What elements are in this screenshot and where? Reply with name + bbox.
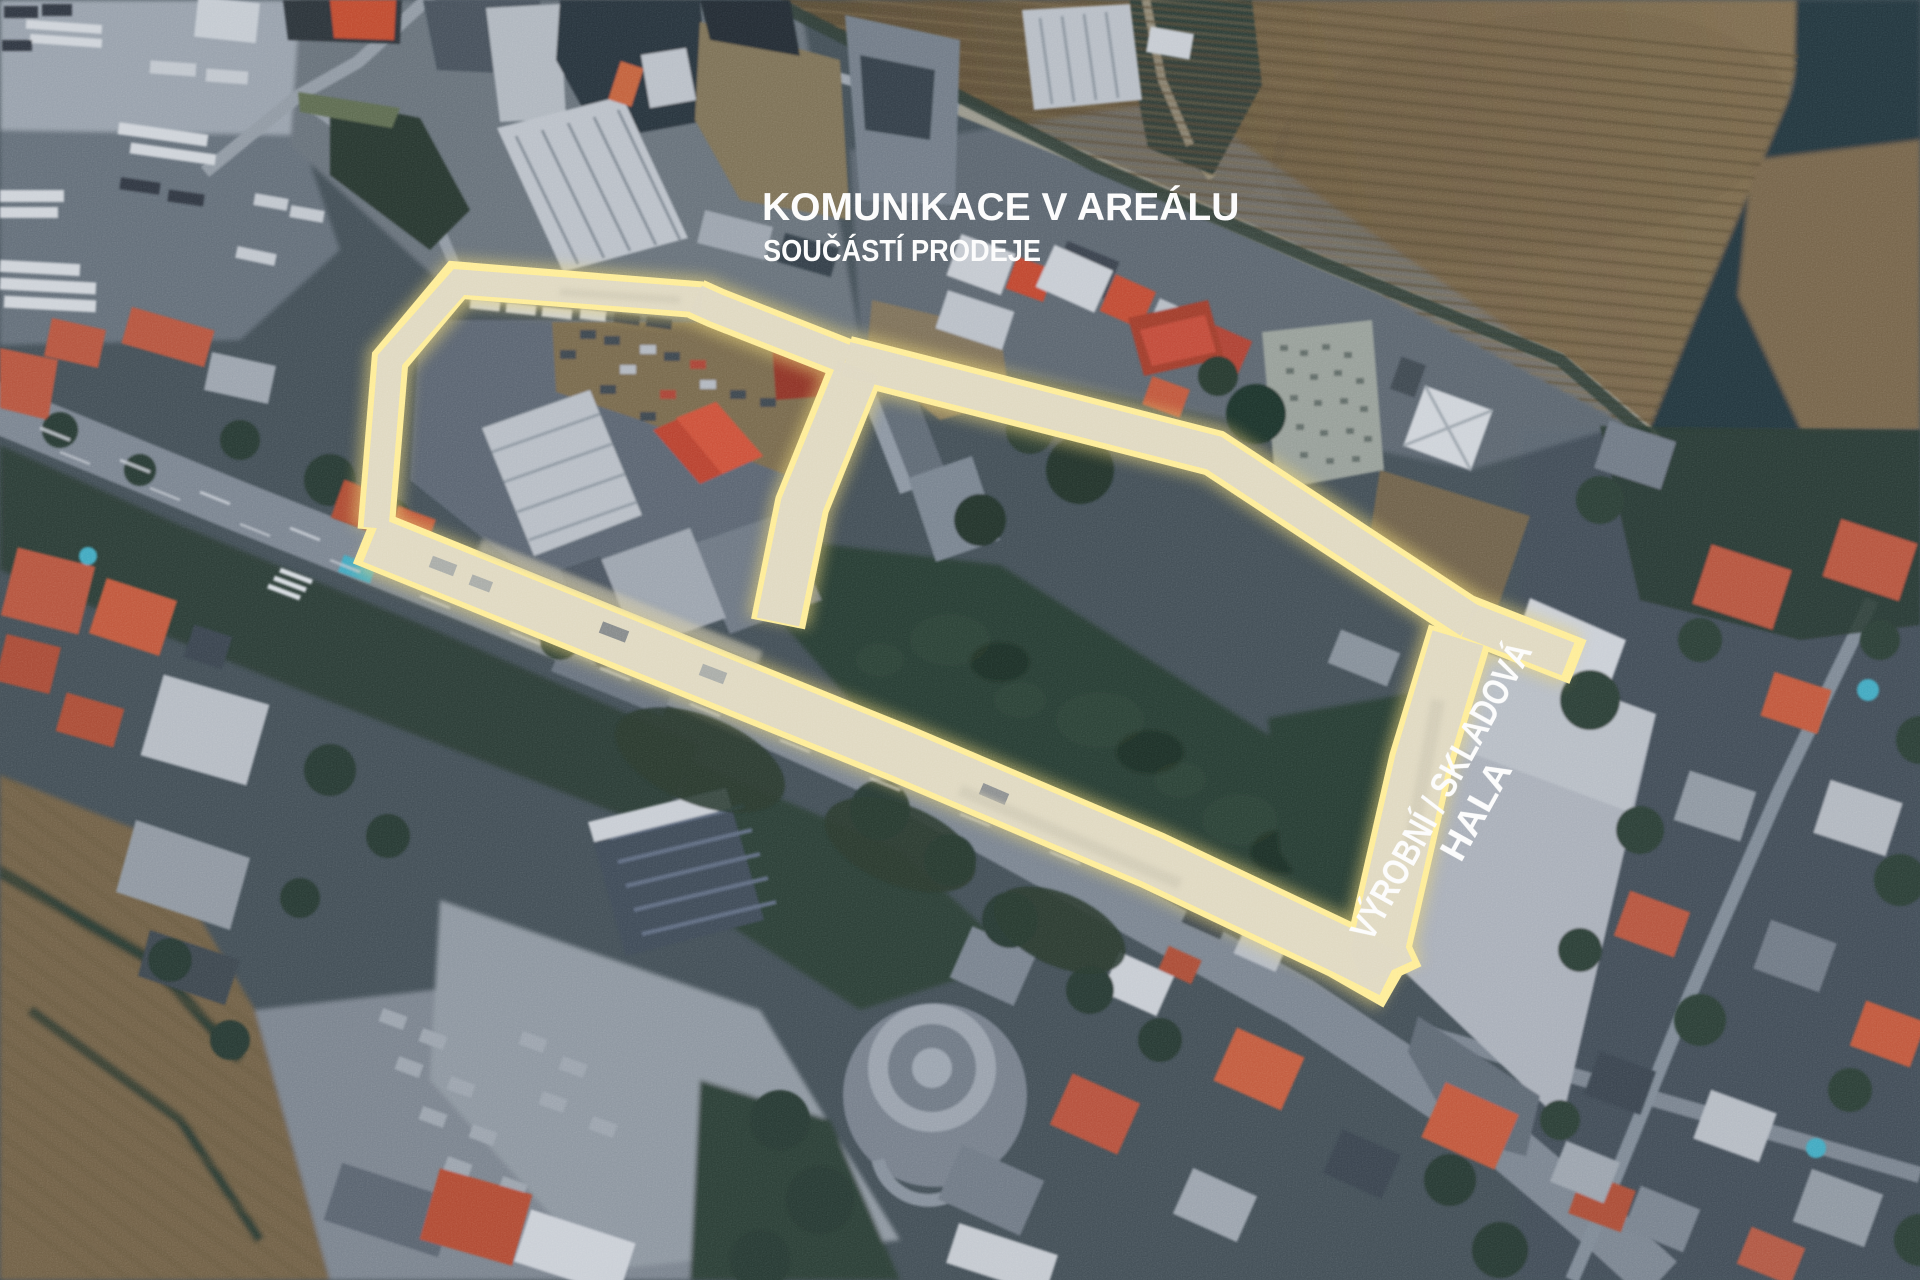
svg-text:KOMUNIKACE V AREÁLU: KOMUNIKACE V AREÁLU xyxy=(762,185,1239,229)
svg-text:SOUČÁSTÍ PRODEJE: SOUČÁSTÍ PRODEJE xyxy=(763,232,1041,268)
